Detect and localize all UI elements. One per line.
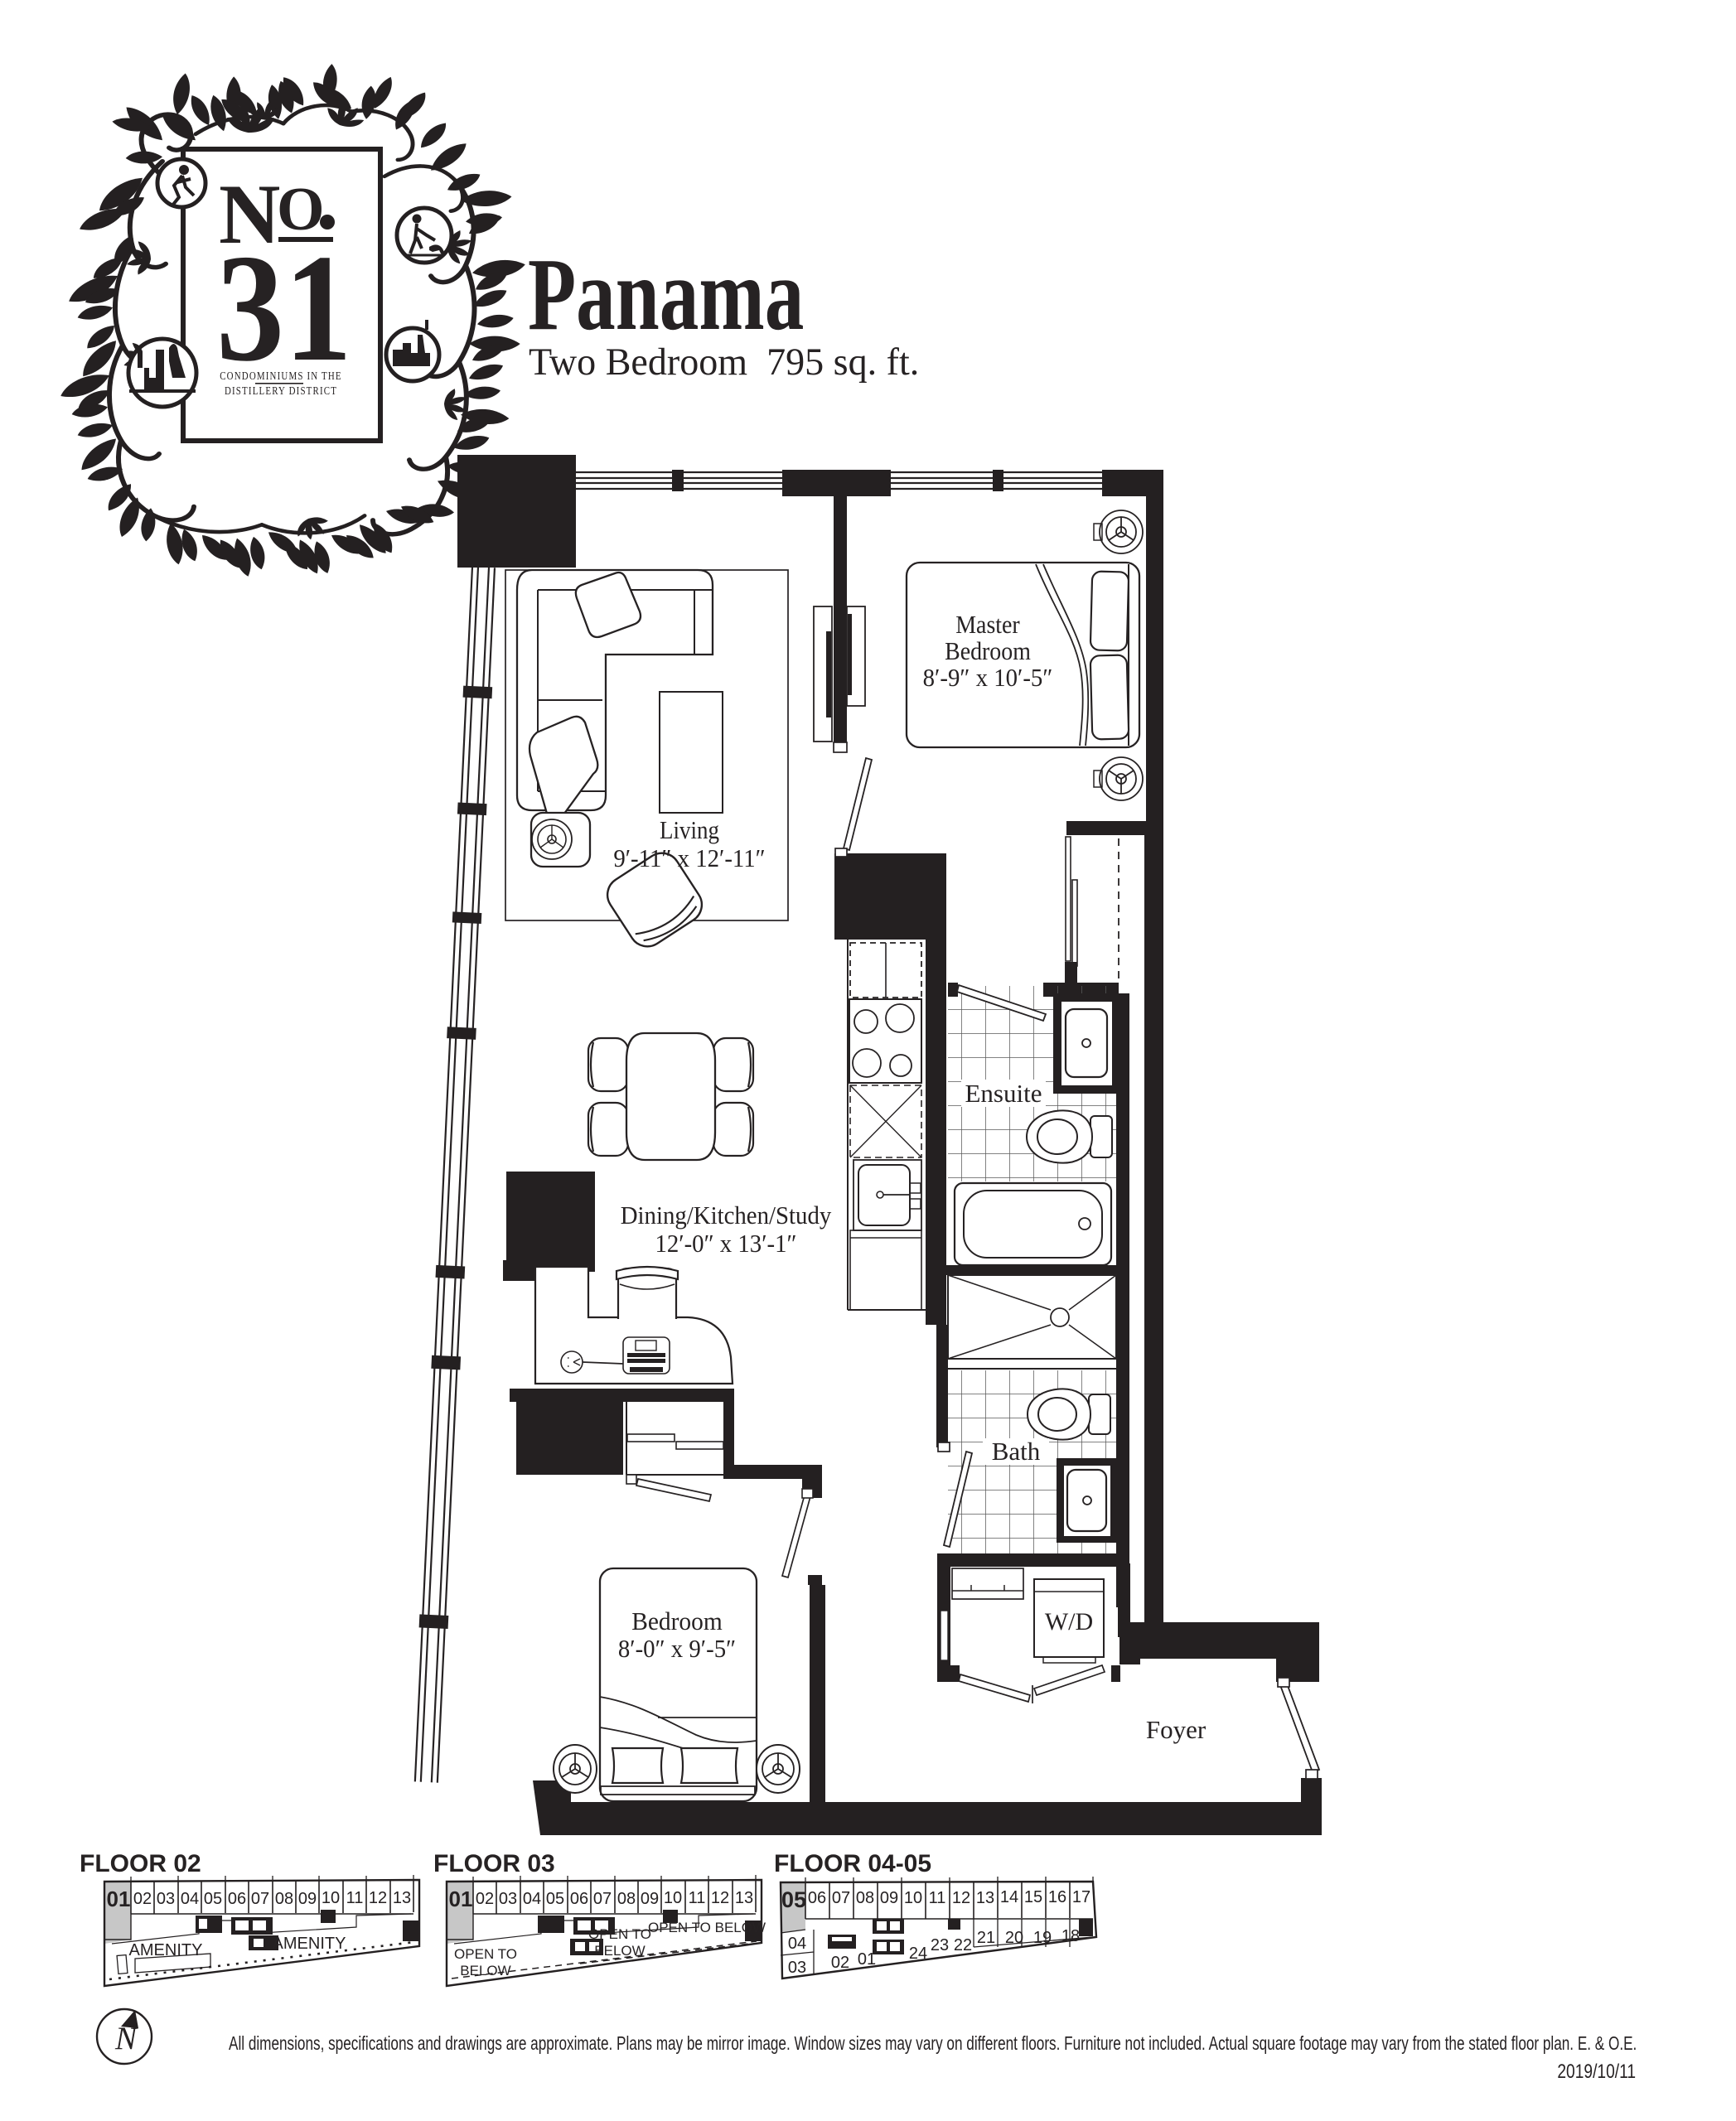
svg-text:06: 06 bbox=[570, 1890, 588, 1908]
svg-text:16: 16 bbox=[1048, 1888, 1066, 1906]
svg-text:FLOOR 04-05: FLOOR 04-05 bbox=[774, 1850, 931, 1877]
svg-text:07: 07 bbox=[832, 1889, 850, 1907]
svg-text:Bedroom: Bedroom bbox=[945, 638, 1031, 666]
svg-text:05: 05 bbox=[546, 1890, 564, 1908]
svg-text:DISTILLERY DISTRICT: DISTILLERY DISTRICT bbox=[225, 384, 337, 398]
svg-text:09: 09 bbox=[880, 1889, 898, 1907]
svg-text:07: 07 bbox=[251, 1890, 269, 1908]
svg-text:20: 20 bbox=[1005, 1929, 1023, 1947]
svg-text:13: 13 bbox=[735, 1889, 753, 1907]
svg-text:Foyer: Foyer bbox=[1146, 1715, 1206, 1744]
svg-text:10: 10 bbox=[904, 1889, 922, 1907]
svg-text:04: 04 bbox=[788, 1935, 806, 1953]
svg-text:01: 01 bbox=[858, 1950, 876, 1969]
svg-text:10: 10 bbox=[664, 1889, 682, 1907]
svg-text:14: 14 bbox=[1000, 1888, 1018, 1906]
svg-text:08: 08 bbox=[617, 1890, 636, 1908]
svg-text:12: 12 bbox=[711, 1889, 729, 1907]
svg-text:07: 07 bbox=[593, 1890, 612, 1908]
svg-text:OPEN TO: OPEN TO bbox=[588, 1926, 651, 1942]
svg-text:31: 31 bbox=[216, 222, 352, 393]
svg-text:17: 17 bbox=[1072, 1888, 1090, 1906]
svg-text:03: 03 bbox=[788, 1959, 806, 1977]
svg-text:Master: Master bbox=[955, 611, 1020, 640]
svg-text:9′-11″ x 12′-11″: 9′-11″ x 12′-11″ bbox=[613, 844, 765, 872]
svg-text:06: 06 bbox=[228, 1890, 246, 1908]
svg-text:08: 08 bbox=[856, 1889, 874, 1907]
svg-text:24: 24 bbox=[909, 1945, 927, 1963]
svg-text:02: 02 bbox=[133, 1890, 152, 1908]
svg-text:22: 22 bbox=[954, 1936, 972, 1954]
svg-text:CONDOMINIUMS IN THE: CONDOMINIUMS IN THE bbox=[220, 370, 342, 383]
svg-text:All dimensions, specifications: All dimensions, specifications and drawi… bbox=[229, 2034, 1637, 2055]
svg-text:02: 02 bbox=[476, 1890, 494, 1908]
svg-text:21: 21 bbox=[977, 1929, 995, 1947]
svg-text:18: 18 bbox=[1061, 1927, 1080, 1945]
svg-text:Ensuite: Ensuite bbox=[965, 1079, 1042, 1108]
svg-text:03: 03 bbox=[499, 1890, 517, 1908]
svg-text:N: N bbox=[114, 2021, 138, 2056]
svg-text:Two Bedroom 795 sq. ft.: Two Bedroom 795 sq. ft. bbox=[529, 341, 919, 384]
svg-text:Bedroom: Bedroom bbox=[631, 1606, 723, 1635]
svg-text:01: 01 bbox=[449, 1887, 473, 1911]
svg-text:2019/10/11: 2019/10/11 bbox=[1557, 2060, 1636, 2083]
svg-text:OPEN TO: OPEN TO bbox=[454, 1946, 517, 1962]
svg-text:19: 19 bbox=[1033, 1929, 1052, 1947]
svg-text:12: 12 bbox=[952, 1889, 970, 1907]
svg-text:Living: Living bbox=[660, 816, 719, 844]
svg-text:04: 04 bbox=[523, 1890, 541, 1908]
svg-text:Dining/Kitchen/Study: Dining/Kitchen/Study bbox=[621, 1201, 832, 1230]
svg-text:05: 05 bbox=[204, 1890, 222, 1908]
svg-text:08: 08 bbox=[275, 1890, 293, 1908]
svg-text:AMENITY: AMENITY bbox=[273, 1935, 346, 1953]
svg-text:03: 03 bbox=[157, 1890, 175, 1908]
svg-text:15: 15 bbox=[1024, 1888, 1042, 1906]
svg-text:05: 05 bbox=[781, 1887, 806, 1912]
svg-text:11: 11 bbox=[929, 1889, 946, 1907]
svg-text:06: 06 bbox=[808, 1889, 826, 1907]
svg-text:04: 04 bbox=[181, 1890, 199, 1908]
svg-text:W/D: W/D bbox=[1045, 1608, 1093, 1635]
svg-text:02: 02 bbox=[831, 1954, 849, 1972]
svg-text:11: 11 bbox=[346, 1889, 364, 1907]
svg-text:01: 01 bbox=[107, 1887, 131, 1911]
svg-text:Bath: Bath bbox=[992, 1437, 1041, 1466]
svg-text:FLOOR 02: FLOOR 02 bbox=[80, 1850, 201, 1877]
svg-text:10: 10 bbox=[322, 1889, 340, 1907]
svg-text:23: 23 bbox=[931, 1936, 949, 1954]
svg-text:09: 09 bbox=[641, 1890, 659, 1908]
svg-text:12′-0″ x 13′-1″: 12′-0″ x 13′-1″ bbox=[655, 1230, 796, 1258]
svg-text:12: 12 bbox=[369, 1889, 387, 1907]
svg-text:FLOOR 03: FLOOR 03 bbox=[433, 1850, 555, 1877]
svg-text:13: 13 bbox=[976, 1889, 994, 1907]
svg-text:11: 11 bbox=[689, 1889, 706, 1907]
svg-text:8′-0″ x 9′-5″: 8′-0″ x 9′-5″ bbox=[618, 1635, 736, 1663]
svg-text:13: 13 bbox=[393, 1889, 411, 1907]
svg-text:Panama: Panama bbox=[528, 238, 804, 352]
svg-text:09: 09 bbox=[298, 1890, 317, 1908]
svg-text:OPEN TO BELOW: OPEN TO BELOW bbox=[648, 1920, 766, 1935]
svg-text:8′-9″ x 10′-5″: 8′-9″ x 10′-5″ bbox=[923, 664, 1053, 692]
